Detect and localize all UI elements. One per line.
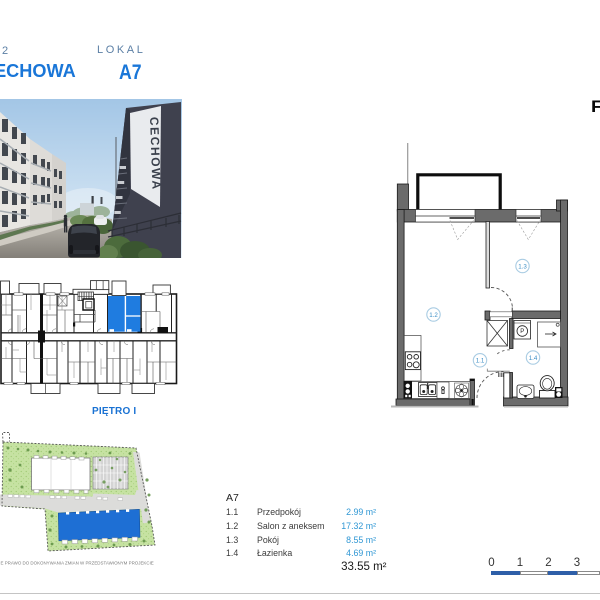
svg-text:P: P — [520, 329, 524, 335]
svg-text:E PRAWO DO DOKONYWANIA ZMIAN W: E PRAWO DO DOKONYWANIA ZMIAN W PRZEDSTAW… — [1, 561, 154, 566]
svg-text:CECHOWA: CECHOWA — [147, 117, 164, 191]
svg-text:1.2: 1.2 — [429, 312, 438, 319]
svg-text:1.4: 1.4 — [529, 355, 538, 362]
svg-text:1.3: 1.3 — [518, 263, 527, 270]
svg-text:1.1: 1.1 — [476, 358, 485, 365]
